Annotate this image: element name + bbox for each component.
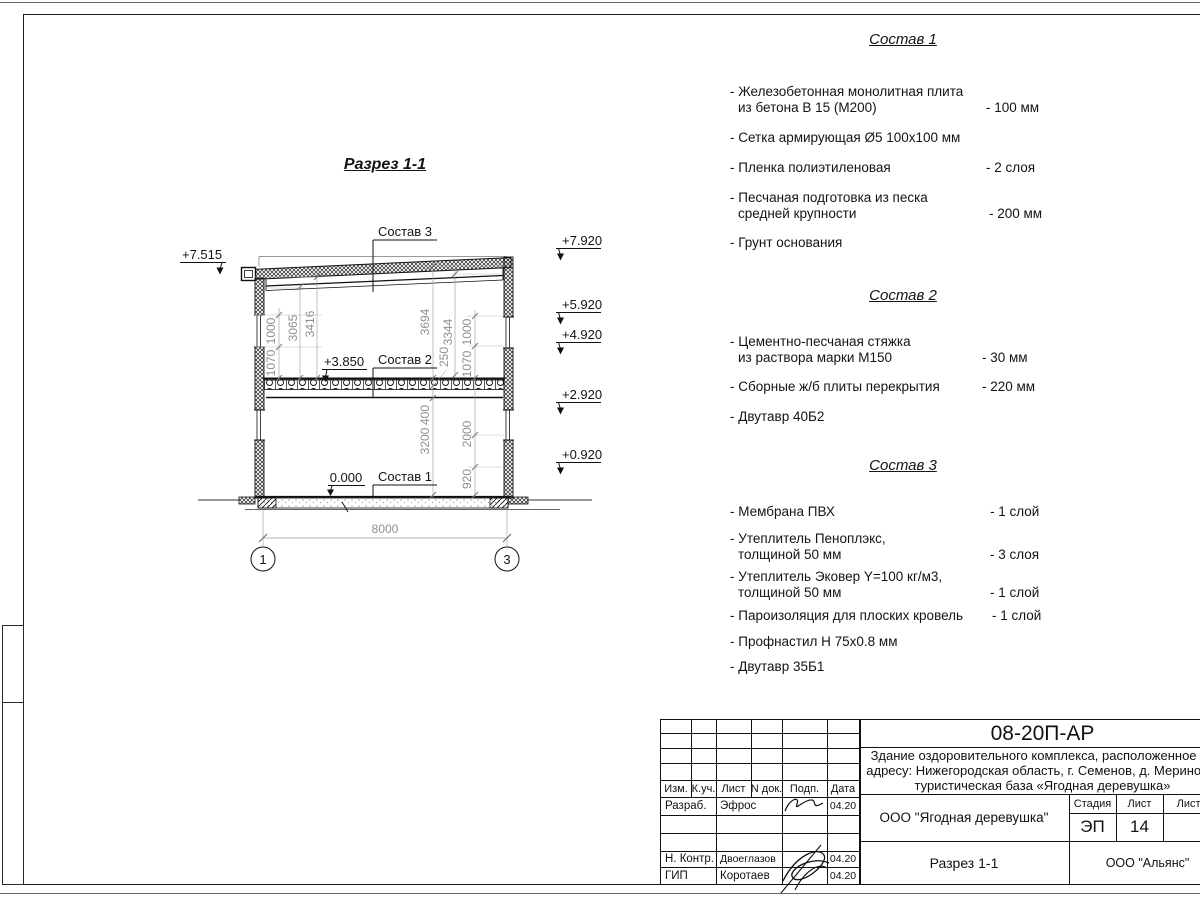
tb-col-kuch: К.уч.	[691, 780, 716, 797]
tb-stage-value: ЭП	[1069, 813, 1116, 841]
tb-col-podp: Подп.	[782, 780, 827, 797]
sostav3-item3-line1: - Утеплитель Эковер Y=100 кг/м3,	[730, 569, 942, 584]
tb-view-name: Разрез 1-1	[859, 841, 1069, 884]
tb-org: ООО "Ягодная деревушка"	[859, 794, 1069, 841]
tb-document-code: 08-20П-АР	[859, 720, 1200, 747]
tb-col-data: Дата	[827, 780, 859, 797]
tb-name-efros: Эфрос	[716, 797, 786, 815]
sostav1-item1-line2: из бетона В 15 (М200)	[738, 100, 877, 115]
sostav1-item1-value: - 100 мм	[986, 100, 1039, 115]
sostav1-item3: - Пленка полиэтиленовая	[730, 160, 891, 175]
sostav2-item1-value: - 30 мм	[982, 350, 1028, 365]
margin-box-bottom	[2, 702, 24, 885]
sheet-edge-top	[0, 2, 1200, 3]
sostav2-item2-value: - 220 мм	[982, 379, 1035, 394]
sostav1-item5: - Грунт основания	[730, 235, 842, 250]
tb-role-gip: ГИП	[661, 867, 720, 884]
sostav3-item3-line2: толщиной 50 мм	[738, 585, 841, 600]
sheet-edge-bottom	[0, 893, 1200, 894]
sostav3-item4-value: - 1 слой	[992, 608, 1041, 623]
sostav3-item2-line1: - Утеплитель Пеноплэкс,	[730, 531, 886, 546]
tb-stage-header: Стадия	[1069, 794, 1116, 813]
tb-role-razrab: Разраб.	[661, 797, 720, 815]
margin-box-top	[2, 625, 24, 704]
tb-date-4: 04.20	[827, 851, 859, 867]
sostav1-item3-value: - 2 слоя	[986, 160, 1035, 175]
section-view-title: Разрез 1-1	[305, 156, 465, 174]
sostav2-item1-line2: из раствора марки М150	[738, 350, 892, 365]
drawing-sheet: { "drawing": { "title": "Разрез 1-1", "e…	[0, 0, 1200, 900]
sostav3-item6: - Двутавр 35Б1	[730, 659, 824, 674]
sostav3-item2-line2: толщиной 50 мм	[738, 547, 841, 562]
tb-sheet-value: 14	[1116, 813, 1163, 841]
title-block: Изм. К.уч. Лист N док. Подп. Дата Разраб…	[660, 719, 1200, 885]
sostav1-heading: Состав 1	[803, 31, 1003, 48]
tb-date-5: 04.20	[827, 867, 859, 884]
sostav1-item1-line1: - Железобетонная монолитная плита	[730, 84, 963, 99]
tb-desc-line3: туристическая база «Ягодная деревушка»	[859, 778, 1200, 793]
tb-role-nkontr: Н. Контр.	[661, 851, 720, 867]
sostav2-item2: - Сборные ж/б плиты перекрытия	[730, 379, 940, 394]
sostav3-item4: - Пароизоляция для плоских кровель	[730, 608, 963, 623]
tb-name-dvoeglazov: Двоеглазов	[716, 851, 786, 867]
sostav3-item1-value: - 1 слой	[990, 504, 1039, 519]
tb-name-korotaev: Коротаев	[716, 867, 786, 884]
tb-desc-line2: адресу: Нижегородская область, г. Семено…	[859, 763, 1200, 778]
sostav2-item3: - Двутавр 40Б2	[730, 409, 824, 424]
tb-date-1: 04.20	[827, 797, 859, 815]
sostav2-item1-line1: - Цементно-песчаная стяжка	[730, 334, 911, 349]
tb-sheets-header: Листов	[1163, 794, 1200, 813]
sostav1-item2: - Сетка армирующая Ø5 100х100 мм	[730, 130, 960, 145]
tb-sheet-header: Лист	[1116, 794, 1163, 813]
sostav3-item2-value: - 3 слоя	[990, 547, 1039, 562]
sostav1-item4-line1: - Песчаная подготовка из песка	[730, 190, 928, 205]
sostav3-heading: Состав 3	[803, 457, 1003, 474]
sostav3-item1: - Мембрана ПВХ	[730, 504, 835, 519]
tb-col-list: Лист	[716, 780, 751, 797]
sostav1-item4-line2: средней крупности	[738, 206, 856, 221]
tb-col-izm: Изм.	[661, 780, 691, 797]
tb-col-ndok: N док.	[751, 780, 782, 797]
sostav3-item5: - Профнастил Н 75х0.8 мм	[730, 634, 897, 649]
tb-desc-line1: Здание оздоровительного комплекса, распо…	[859, 748, 1200, 763]
sostav1-item4-value: - 200 мм	[989, 206, 1042, 221]
sostav3-item3-value: - 1 слой	[990, 585, 1039, 600]
tb-contractor: ООО "Альянс"	[1069, 841, 1200, 884]
sostav2-heading: Состав 2	[803, 287, 1003, 304]
